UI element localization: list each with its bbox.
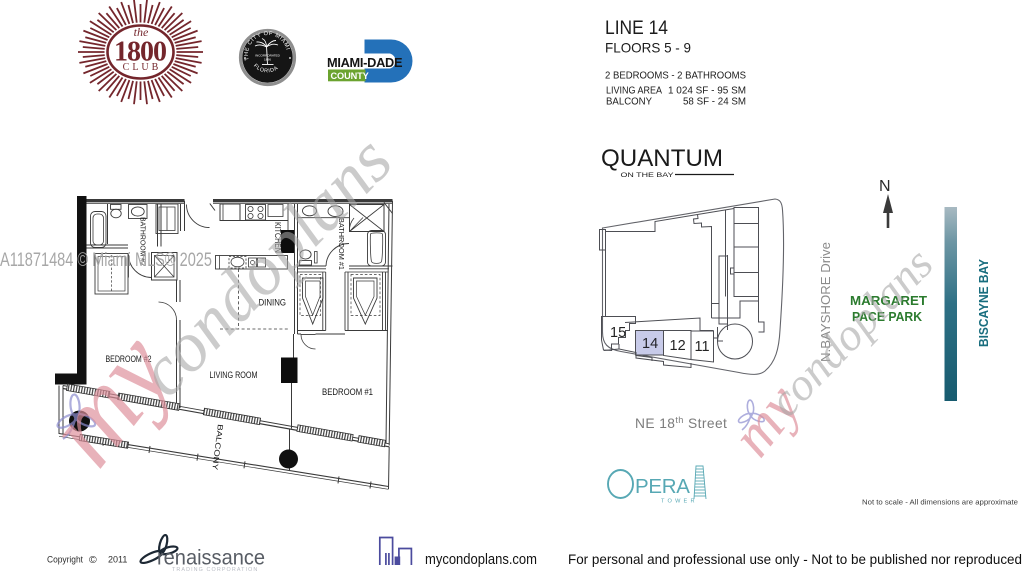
svg-text:1896: 1896: [264, 58, 271, 62]
svg-text:QUANTUM: QUANTUM: [601, 145, 723, 172]
svg-text:58 SF - 24 SM: 58 SF - 24 SM: [683, 97, 746, 108]
svg-text:LIVING AREA: LIVING AREA: [606, 86, 662, 97]
svg-text:LINE 14: LINE 14: [605, 17, 668, 39]
svg-text:FLOORS 5 - 9: FLOORS 5 - 9: [605, 41, 691, 56]
svg-text:14: 14: [642, 336, 658, 352]
svg-text:©: ©: [89, 554, 97, 566]
svg-text:Not to scale - All dimensions: Not to scale - All dimensions are approx…: [862, 498, 1018, 507]
svg-text:1 024 SF - 95 SM: 1 024 SF - 95 SM: [668, 86, 746, 97]
svg-text:2 BEDROOMS - 2 BATHROOMS: 2 BEDROOMS - 2 BATHROOMS: [605, 71, 746, 82]
svg-text:For personal and professional: For personal and professional use only -…: [568, 552, 1022, 567]
svg-text:Copyright: Copyright: [47, 555, 83, 565]
svg-text:COUNTY: COUNTY: [331, 71, 369, 81]
svg-text:TOWER: TOWER: [661, 499, 698, 505]
svg-text:12: 12: [670, 338, 686, 354]
svg-text:2011: 2011: [108, 555, 127, 565]
svg-text:BEDROOM #1: BEDROOM #1: [322, 387, 373, 397]
svg-text:mycondoplans.com: mycondoplans.com: [425, 552, 537, 568]
svg-text:BISCAYNE BAY: BISCAYNE BAY: [976, 259, 991, 347]
svg-text:PERA: PERA: [635, 475, 690, 498]
svg-text:BALCONY: BALCONY: [606, 97, 652, 108]
svg-text:MIAMI-DADE: MIAMI-DADE: [327, 55, 403, 70]
svg-text:TRADING CORPORATION: TRADING CORPORATION: [172, 567, 258, 571]
svg-text:11: 11: [695, 339, 710, 355]
svg-text:CLUB: CLUB: [123, 62, 162, 73]
svg-text:ON THE BAY: ON THE BAY: [621, 172, 675, 179]
svg-text:N: N: [879, 178, 891, 195]
svg-text:A11871484 © Miami MLS® 2025: A11871484 © Miami MLS® 2025: [0, 250, 212, 271]
svg-text:15: 15: [610, 325, 626, 341]
